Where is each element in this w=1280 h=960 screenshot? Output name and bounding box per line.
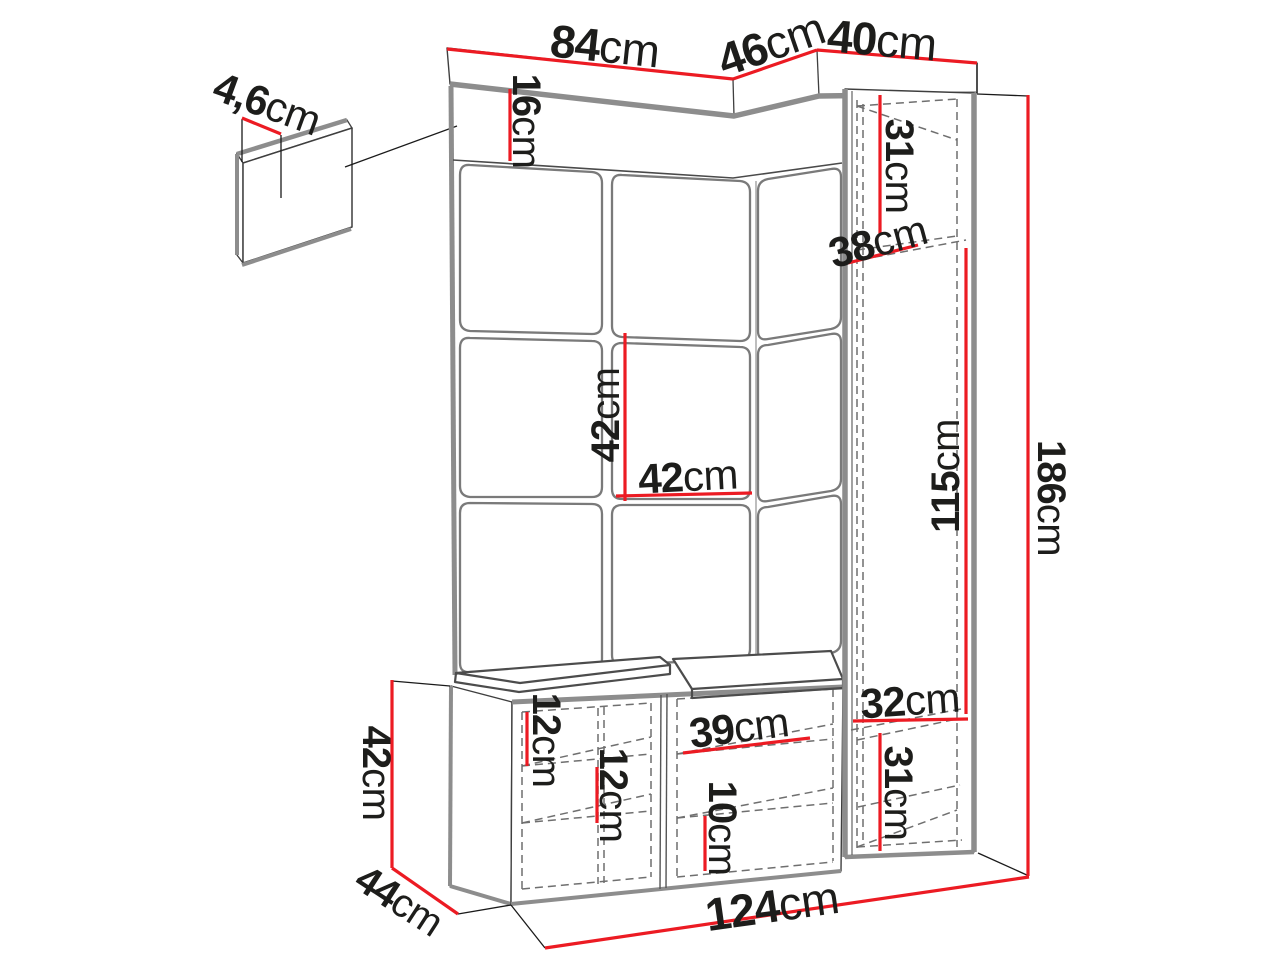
upholstered-panel <box>612 505 750 664</box>
dim-bench-height-label: 42cm <box>356 726 396 821</box>
upholstered-panel <box>460 338 602 497</box>
dim-cabinet-lower-section-label: 31cm <box>878 746 918 841</box>
furniture-dimension-diagram: 84cm 46cm 40cm 4,6cm 16cm 31cm 38cm 42cm… <box>0 0 1280 960</box>
dim-panel-width-label: 42cm <box>637 453 739 500</box>
dim-cabinet-middle-section-label: 115cm <box>926 419 966 533</box>
upholstered-panel <box>758 496 841 660</box>
wall-hook-panel <box>237 120 352 265</box>
dim-hook-rail-height-label: 16cm <box>506 74 546 169</box>
dim-bench-upper-gap-label: 12cm <box>526 693 566 788</box>
upholstered-panel <box>460 503 602 672</box>
dim-panel-row-top-width-label: 84cm <box>548 17 662 74</box>
dim-cabinet-top-width-label: 40cm <box>825 12 938 67</box>
upholstered-panel <box>758 334 841 502</box>
panel-wall <box>451 86 842 675</box>
dim-bench-lower-gap-label: 10cm <box>702 781 742 876</box>
bench <box>450 651 843 904</box>
dim-cabinet-shelf-width-label: 32cm <box>859 677 961 726</box>
upholstered-panel-grid <box>460 165 841 672</box>
dim-cabinet-upper-section-label: 31cm <box>879 119 919 214</box>
dim-bench-middle-gap-label: 12cm <box>593 748 633 843</box>
dim-panel-height-label: 42cm <box>586 368 626 463</box>
upholstered-panel <box>612 175 750 341</box>
upholstered-panel <box>460 165 602 334</box>
leader-line <box>345 126 457 167</box>
upholstered-panel <box>758 169 841 340</box>
dim-total-height-label: 186cm <box>1031 440 1071 556</box>
